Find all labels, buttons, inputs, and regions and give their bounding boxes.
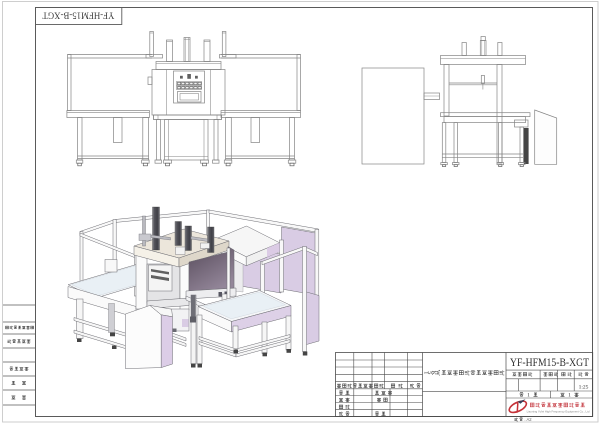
svg-text:1: 1 [527,393,530,399]
svg-text:W: W [434,370,441,376]
svg-text:1: 1 [568,393,571,399]
svg-text:Liaoning Yufei High Frequency: Liaoning Yufei High Frequency Equipment … [527,410,590,414]
svg-text:YF-HFM15-B-XGT: YF-HFM15-B-XGT [42,11,114,21]
svg-text:1:25: 1:25 [579,384,589,390]
svg-text:. A2: . A2 [524,417,532,422]
svg-text:YF-HFM15-B-XGT: YF-HFM15-B-XGT [510,355,590,369]
